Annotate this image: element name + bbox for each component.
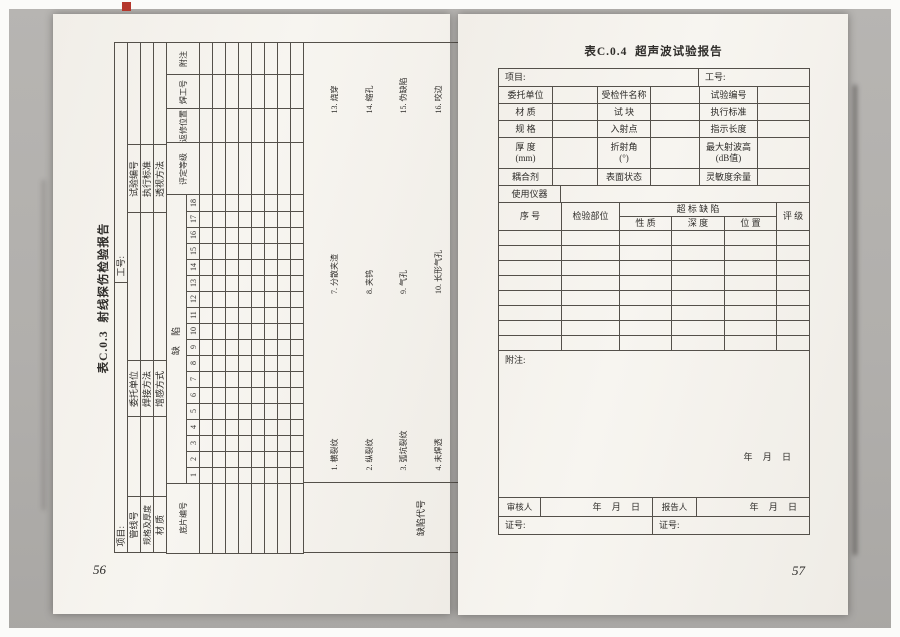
empty-cell bbox=[200, 435, 213, 451]
date-cell: 年 月 日 bbox=[697, 498, 810, 517]
empty-grid-body bbox=[200, 43, 304, 553]
col-number-cell: 13 bbox=[187, 275, 200, 291]
empty-data-row bbox=[265, 43, 278, 553]
empty-cell bbox=[200, 195, 213, 211]
empty-cell bbox=[777, 291, 810, 306]
empty-cell bbox=[141, 213, 154, 361]
label-cell: 灵敏度余量 bbox=[700, 169, 758, 186]
empty-cell bbox=[291, 75, 304, 109]
empty-cell bbox=[278, 387, 291, 403]
empty-cell bbox=[278, 227, 291, 243]
empty-cell bbox=[141, 43, 154, 145]
col-number-cell: 18 bbox=[187, 195, 200, 211]
table-row: 材 质 增感方式 透视方法 bbox=[154, 43, 167, 553]
empty-cell bbox=[239, 227, 252, 243]
empty-cell bbox=[651, 104, 700, 121]
empty-cell bbox=[499, 231, 562, 246]
legend-item: 9. 气孔 bbox=[398, 250, 410, 294]
empty-cell bbox=[291, 259, 304, 275]
empty-cell bbox=[226, 451, 239, 467]
empty-data-row bbox=[499, 336, 810, 351]
empty-cell bbox=[725, 276, 777, 291]
empty-cell bbox=[651, 121, 700, 138]
label-cell: 规格及厚度 bbox=[141, 497, 154, 553]
position-header-cell: 位 置 bbox=[725, 217, 777, 231]
empty-cell bbox=[265, 109, 278, 143]
empty-cell bbox=[252, 227, 265, 243]
label-cell: 增感方式 bbox=[154, 361, 167, 417]
empty-cell bbox=[561, 186, 810, 203]
empty-cell bbox=[777, 306, 810, 321]
nature-header-cell: 性 质 bbox=[620, 217, 672, 231]
label-cell: 执行标准 bbox=[700, 104, 758, 121]
empty-data-row bbox=[200, 43, 213, 553]
empty-cell bbox=[226, 259, 239, 275]
empty-cell bbox=[239, 275, 252, 291]
empty-cell bbox=[672, 306, 725, 321]
col-number-cell: 6 bbox=[187, 387, 200, 403]
remarks-header-cell: 附注 bbox=[167, 43, 200, 75]
form-title-c04: 表C.0.4 超声波试验报告 bbox=[498, 43, 809, 59]
c03-defect-grid: 底片编号 缺 陷 评定等级 返修位置 焊工号 附注 1 2 3 4 5 6 7 … bbox=[166, 42, 304, 553]
empty-cell bbox=[213, 403, 226, 419]
empty-cell bbox=[239, 307, 252, 323]
empty-cell bbox=[213, 43, 226, 75]
empty-cell bbox=[777, 276, 810, 291]
grade-header-cell: 评 级 bbox=[777, 203, 810, 231]
empty-cell bbox=[777, 231, 810, 246]
empty-cell bbox=[239, 483, 252, 553]
empty-cell bbox=[278, 419, 291, 435]
empty-cell bbox=[265, 403, 278, 419]
empty-cell bbox=[777, 336, 810, 351]
legend-item: 15. 伪缺陷 bbox=[398, 70, 410, 114]
empty-cell bbox=[213, 109, 226, 143]
table-row: 规格及厚度 焊接方法 执行标准 bbox=[141, 43, 154, 553]
empty-cell bbox=[200, 467, 213, 483]
legend-item: 13. 烧穿 bbox=[329, 70, 341, 114]
empty-data-row bbox=[499, 276, 810, 291]
empty-cell bbox=[213, 291, 226, 307]
scanned-document-spread: 表C.0.3 射线探伤检验报告 项目: 工号: 管线号 委托单位 试验编号 bbox=[0, 0, 900, 637]
project-label-cell: 项目: bbox=[115, 283, 128, 553]
empty-cell bbox=[239, 75, 252, 109]
empty-cell bbox=[278, 467, 291, 483]
empty-cell bbox=[252, 75, 265, 109]
page-57: 表C.0.4 超声波试验报告 项目: 工号: 委托单位 受检件名称 试验编号 bbox=[458, 14, 848, 615]
legend-item: 16. 咬边 bbox=[433, 70, 445, 114]
empty-data-row bbox=[499, 261, 810, 276]
project-label-cell: 项目: bbox=[499, 69, 699, 87]
c04-signature-row: 审核人 年 月 日 报告人 年 月 日 bbox=[498, 497, 810, 517]
empty-cell bbox=[226, 355, 239, 371]
empty-cell bbox=[213, 307, 226, 323]
inspect-part-header-cell: 检验部位 bbox=[562, 203, 620, 231]
empty-cell bbox=[651, 138, 700, 169]
empty-cell bbox=[777, 261, 810, 276]
empty-cell bbox=[291, 143, 304, 195]
empty-cell bbox=[226, 195, 239, 211]
empty-cell bbox=[213, 323, 226, 339]
empty-data-row bbox=[499, 291, 810, 306]
empty-cell bbox=[553, 121, 598, 138]
col-number-cell: 14 bbox=[187, 259, 200, 275]
empty-cell bbox=[777, 246, 810, 261]
empty-cell bbox=[213, 355, 226, 371]
table-row: 审核人 年 月 日 报告人 年 月 日 bbox=[499, 498, 810, 517]
empty-cell bbox=[278, 43, 291, 75]
empty-cell bbox=[252, 109, 265, 143]
empty-cell bbox=[291, 467, 304, 483]
label-cell: 折射角 (°) bbox=[598, 138, 651, 169]
empty-cell bbox=[239, 403, 252, 419]
empty-data-row bbox=[239, 43, 252, 553]
empty-cell bbox=[226, 467, 239, 483]
empty-cell bbox=[213, 451, 226, 467]
empty-cell bbox=[213, 275, 226, 291]
empty-cell bbox=[651, 87, 700, 104]
empty-cell bbox=[213, 143, 226, 195]
empty-cell bbox=[213, 75, 226, 109]
table-row: 管线号 委托单位 试验编号 bbox=[128, 43, 141, 553]
empty-cell bbox=[499, 291, 562, 306]
empty-cell bbox=[265, 307, 278, 323]
empty-cell bbox=[252, 291, 265, 307]
empty-data-row bbox=[499, 321, 810, 336]
empty-cell bbox=[213, 211, 226, 227]
empty-cell bbox=[672, 321, 725, 336]
empty-cell bbox=[239, 195, 252, 211]
film-no-header-cell: 底片编号 bbox=[167, 483, 200, 553]
empty-cell bbox=[291, 435, 304, 451]
empty-cell bbox=[252, 259, 265, 275]
col-number-cell: 9 bbox=[187, 339, 200, 355]
empty-cell bbox=[278, 323, 291, 339]
empty-cell bbox=[226, 211, 239, 227]
empty-cell bbox=[291, 109, 304, 143]
legend-item: 2. 纵裂纹 bbox=[364, 431, 376, 471]
empty-cell bbox=[562, 261, 620, 276]
empty-cell bbox=[239, 243, 252, 259]
empty-cell bbox=[265, 243, 278, 259]
empty-cell bbox=[278, 259, 291, 275]
empty-cell bbox=[200, 275, 213, 291]
notes-cell: 附注: 年 月 日 bbox=[499, 351, 810, 498]
scan-shadow-left bbox=[42, 180, 45, 510]
empty-cell bbox=[553, 87, 598, 104]
col-number-cell: 11 bbox=[187, 307, 200, 323]
empty-cell bbox=[672, 276, 725, 291]
table-row: 规 格 入射点 指示长度 bbox=[499, 121, 810, 138]
empty-cell bbox=[265, 291, 278, 307]
empty-cell bbox=[278, 291, 291, 307]
table-row: 附注: 年 月 日 bbox=[499, 351, 810, 498]
c04-project-row: 项目: 工号: bbox=[498, 68, 810, 87]
empty-cell bbox=[291, 403, 304, 419]
label-cell: 受检件名称 bbox=[598, 87, 651, 104]
col-number-cell: 4 bbox=[187, 419, 200, 435]
table-row: 材 质 试 块 执行标准 bbox=[499, 104, 810, 121]
empty-cell bbox=[758, 104, 810, 121]
empty-cell bbox=[226, 371, 239, 387]
label-cell: 执行标准 bbox=[141, 145, 154, 213]
empty-cell bbox=[265, 467, 278, 483]
empty-cell bbox=[200, 403, 213, 419]
empty-cell bbox=[226, 291, 239, 307]
empty-cell bbox=[226, 435, 239, 451]
empty-cell bbox=[200, 419, 213, 435]
empty-cell bbox=[200, 211, 213, 227]
c04-cert-row: 证号: 证号: bbox=[498, 516, 810, 535]
empty-cell bbox=[226, 307, 239, 323]
empty-cell bbox=[499, 336, 562, 351]
empty-cell bbox=[213, 339, 226, 355]
empty-data-row bbox=[252, 43, 265, 553]
empty-cell bbox=[562, 231, 620, 246]
empty-cell bbox=[239, 435, 252, 451]
empty-cell bbox=[213, 435, 226, 451]
empty-cell bbox=[291, 355, 304, 371]
empty-cell bbox=[278, 109, 291, 143]
empty-cell bbox=[620, 276, 672, 291]
empty-cell bbox=[265, 355, 278, 371]
empty-cell bbox=[620, 291, 672, 306]
empty-cell bbox=[672, 246, 725, 261]
label-cell: 耦合剂 bbox=[499, 169, 553, 186]
empty-cell bbox=[239, 467, 252, 483]
empty-data-row bbox=[291, 43, 304, 553]
empty-cell bbox=[252, 419, 265, 435]
empty-cell bbox=[200, 143, 213, 195]
label-cell: 厚 度 (mm) bbox=[499, 138, 553, 169]
empty-cell bbox=[200, 371, 213, 387]
c03-project-row: 项目: 工号: bbox=[114, 43, 128, 554]
empty-cell bbox=[278, 435, 291, 451]
empty-cell bbox=[620, 306, 672, 321]
table-row: 委托单位 受检件名称 试验编号 bbox=[499, 87, 810, 104]
reviewer-label-cell: 审核人 bbox=[499, 498, 541, 517]
empty-cell bbox=[226, 339, 239, 355]
depth-header-cell: 深 度 bbox=[672, 217, 725, 231]
empty-cell bbox=[239, 43, 252, 75]
empty-cell bbox=[239, 387, 252, 403]
empty-cell bbox=[499, 276, 562, 291]
table-row: 项目: 工号: bbox=[115, 43, 128, 553]
empty-cell bbox=[213, 467, 226, 483]
col-number-cell: 17 bbox=[187, 211, 200, 227]
job-no-label-cell: 工号: bbox=[115, 43, 128, 283]
notes-label: 附注: bbox=[505, 355, 526, 366]
empty-cell bbox=[213, 371, 226, 387]
empty-cell bbox=[239, 291, 252, 307]
red-ink-mark bbox=[122, 2, 131, 11]
empty-cell bbox=[239, 109, 252, 143]
empty-cell bbox=[291, 451, 304, 467]
empty-cell bbox=[252, 275, 265, 291]
empty-cell bbox=[213, 483, 226, 553]
seq-header-cell: 序 号 bbox=[499, 203, 562, 231]
empty-cell bbox=[278, 451, 291, 467]
empty-cell bbox=[252, 403, 265, 419]
empty-cell bbox=[562, 276, 620, 291]
empty-cell bbox=[226, 323, 239, 339]
empty-cell bbox=[265, 75, 278, 109]
empty-cell bbox=[226, 483, 239, 553]
empty-cell bbox=[291, 387, 304, 403]
empty-cell bbox=[291, 323, 304, 339]
repair-pos-header-cell: 返修位置 bbox=[167, 109, 200, 143]
label-cell: 委托单位 bbox=[499, 87, 553, 104]
empty-cell bbox=[651, 169, 700, 186]
empty-cell bbox=[265, 195, 278, 211]
empty-cell bbox=[252, 451, 265, 467]
empty-cell bbox=[252, 483, 265, 553]
empty-cell bbox=[562, 321, 620, 336]
empty-cell bbox=[777, 321, 810, 336]
empty-cell bbox=[499, 321, 562, 336]
empty-cell bbox=[239, 259, 252, 275]
empty-cell bbox=[672, 261, 725, 276]
reporter-label-cell: 报告人 bbox=[653, 498, 697, 517]
empty-cell bbox=[291, 291, 304, 307]
empty-data-row bbox=[499, 306, 810, 321]
empty-cell bbox=[226, 143, 239, 195]
empty-cell bbox=[200, 43, 213, 75]
empty-data-row bbox=[213, 43, 226, 553]
empty-cell bbox=[265, 143, 278, 195]
empty-cell bbox=[278, 195, 291, 211]
empty-cell bbox=[239, 143, 252, 195]
label-cell: 材 质 bbox=[499, 104, 553, 121]
empty-cell bbox=[154, 43, 167, 145]
c03-info-table: 管线号 委托单位 试验编号 规格及厚度 焊接方法 执行标准 材 质 bbox=[127, 43, 167, 554]
empty-cell bbox=[291, 483, 304, 553]
empty-cell bbox=[239, 419, 252, 435]
empty-cell bbox=[200, 355, 213, 371]
empty-cell bbox=[226, 43, 239, 75]
empty-cell bbox=[200, 323, 213, 339]
empty-cell bbox=[672, 231, 725, 246]
legend-item: 8. 夹钨 bbox=[364, 250, 376, 294]
legend-item: 1. 横裂纹 bbox=[329, 431, 341, 471]
empty-cell bbox=[291, 371, 304, 387]
empty-cell bbox=[725, 336, 777, 351]
empty-cell bbox=[725, 306, 777, 321]
empty-cell bbox=[226, 275, 239, 291]
empty-cell bbox=[620, 231, 672, 246]
empty-cell bbox=[265, 371, 278, 387]
empty-cell bbox=[672, 336, 725, 351]
empty-cell bbox=[252, 467, 265, 483]
empty-cell bbox=[200, 109, 213, 143]
empty-cell bbox=[725, 261, 777, 276]
col-number-cell: 3 bbox=[187, 435, 200, 451]
col-number-cell: 10 bbox=[187, 323, 200, 339]
empty-cell bbox=[553, 169, 598, 186]
empty-cell bbox=[725, 246, 777, 261]
empty-cell bbox=[562, 291, 620, 306]
empty-cell bbox=[226, 109, 239, 143]
c04-defect-grid: 序 号 检验部位 超 标 缺 陷 评 级 性 质 深 度 位 置 bbox=[498, 202, 810, 351]
table-row: 项目: 工号: bbox=[499, 69, 810, 87]
empty-cell bbox=[278, 371, 291, 387]
empty-cell bbox=[226, 403, 239, 419]
col-number-cell: 7 bbox=[187, 371, 200, 387]
empty-cell bbox=[278, 307, 291, 323]
empty-cell bbox=[758, 169, 810, 186]
empty-cell bbox=[278, 355, 291, 371]
empty-cell bbox=[291, 339, 304, 355]
empty-cell bbox=[620, 246, 672, 261]
label-cell: 表面状态 bbox=[598, 169, 651, 186]
empty-cell bbox=[154, 213, 167, 361]
empty-cell bbox=[154, 417, 167, 497]
label-cell: 委托单位 bbox=[128, 361, 141, 417]
empty-cell bbox=[758, 121, 810, 138]
empty-data-row bbox=[226, 43, 239, 553]
empty-cell bbox=[213, 195, 226, 211]
form-title-c03: 表C.0.3 射线探伤检验报告 bbox=[96, 38, 114, 558]
empty-cell bbox=[291, 243, 304, 259]
empty-cell bbox=[252, 339, 265, 355]
empty-cell bbox=[200, 451, 213, 467]
label-cell: 入射点 bbox=[598, 121, 651, 138]
empty-cell bbox=[265, 435, 278, 451]
job-no-label-cell: 工号: bbox=[699, 69, 810, 87]
empty-cell bbox=[758, 138, 810, 169]
table-row: 厚 度 (mm) 折射角 (°) 最大射波高 (dB值) bbox=[499, 138, 810, 169]
empty-grid-body bbox=[499, 231, 810, 351]
page-number-56: 56 bbox=[93, 562, 106, 578]
empty-cell bbox=[553, 138, 598, 169]
empty-cell bbox=[128, 43, 141, 145]
empty-cell bbox=[252, 435, 265, 451]
empty-cell bbox=[252, 195, 265, 211]
empty-data-row bbox=[278, 43, 291, 553]
empty-cell bbox=[278, 339, 291, 355]
empty-cell bbox=[265, 323, 278, 339]
empty-cell bbox=[252, 211, 265, 227]
empty-cell bbox=[200, 243, 213, 259]
empty-cell bbox=[499, 261, 562, 276]
cert-no-label-cell: 证号: bbox=[653, 517, 810, 535]
empty-cell bbox=[265, 387, 278, 403]
rotated-form-c03: 表C.0.3 射线探伤检验报告 项目: 工号: 管线号 委托单位 试验编号 bbox=[96, 38, 414, 558]
empty-cell bbox=[200, 291, 213, 307]
table-row: 耦合剂 表面状态 灵敏度余量 bbox=[499, 169, 810, 186]
empty-cell bbox=[278, 243, 291, 259]
col-number-cell: 2 bbox=[187, 451, 200, 467]
empty-cell bbox=[725, 291, 777, 306]
empty-cell bbox=[278, 143, 291, 195]
empty-cell bbox=[291, 227, 304, 243]
empty-cell bbox=[291, 195, 304, 211]
empty-cell bbox=[265, 339, 278, 355]
empty-cell bbox=[291, 211, 304, 227]
label-cell: 试验编号 bbox=[700, 87, 758, 104]
legend-item: 14. 缩孔 bbox=[364, 70, 376, 114]
empty-cell bbox=[252, 355, 265, 371]
empty-cell bbox=[252, 243, 265, 259]
empty-cell bbox=[239, 451, 252, 467]
empty-cell bbox=[200, 259, 213, 275]
empty-cell bbox=[239, 339, 252, 355]
page-number-57: 57 bbox=[792, 563, 805, 579]
empty-cell bbox=[265, 259, 278, 275]
empty-data-row bbox=[499, 246, 810, 261]
scan-shadow-right bbox=[853, 85, 857, 555]
legend-item: 7. 分散夹渣 bbox=[329, 250, 341, 294]
